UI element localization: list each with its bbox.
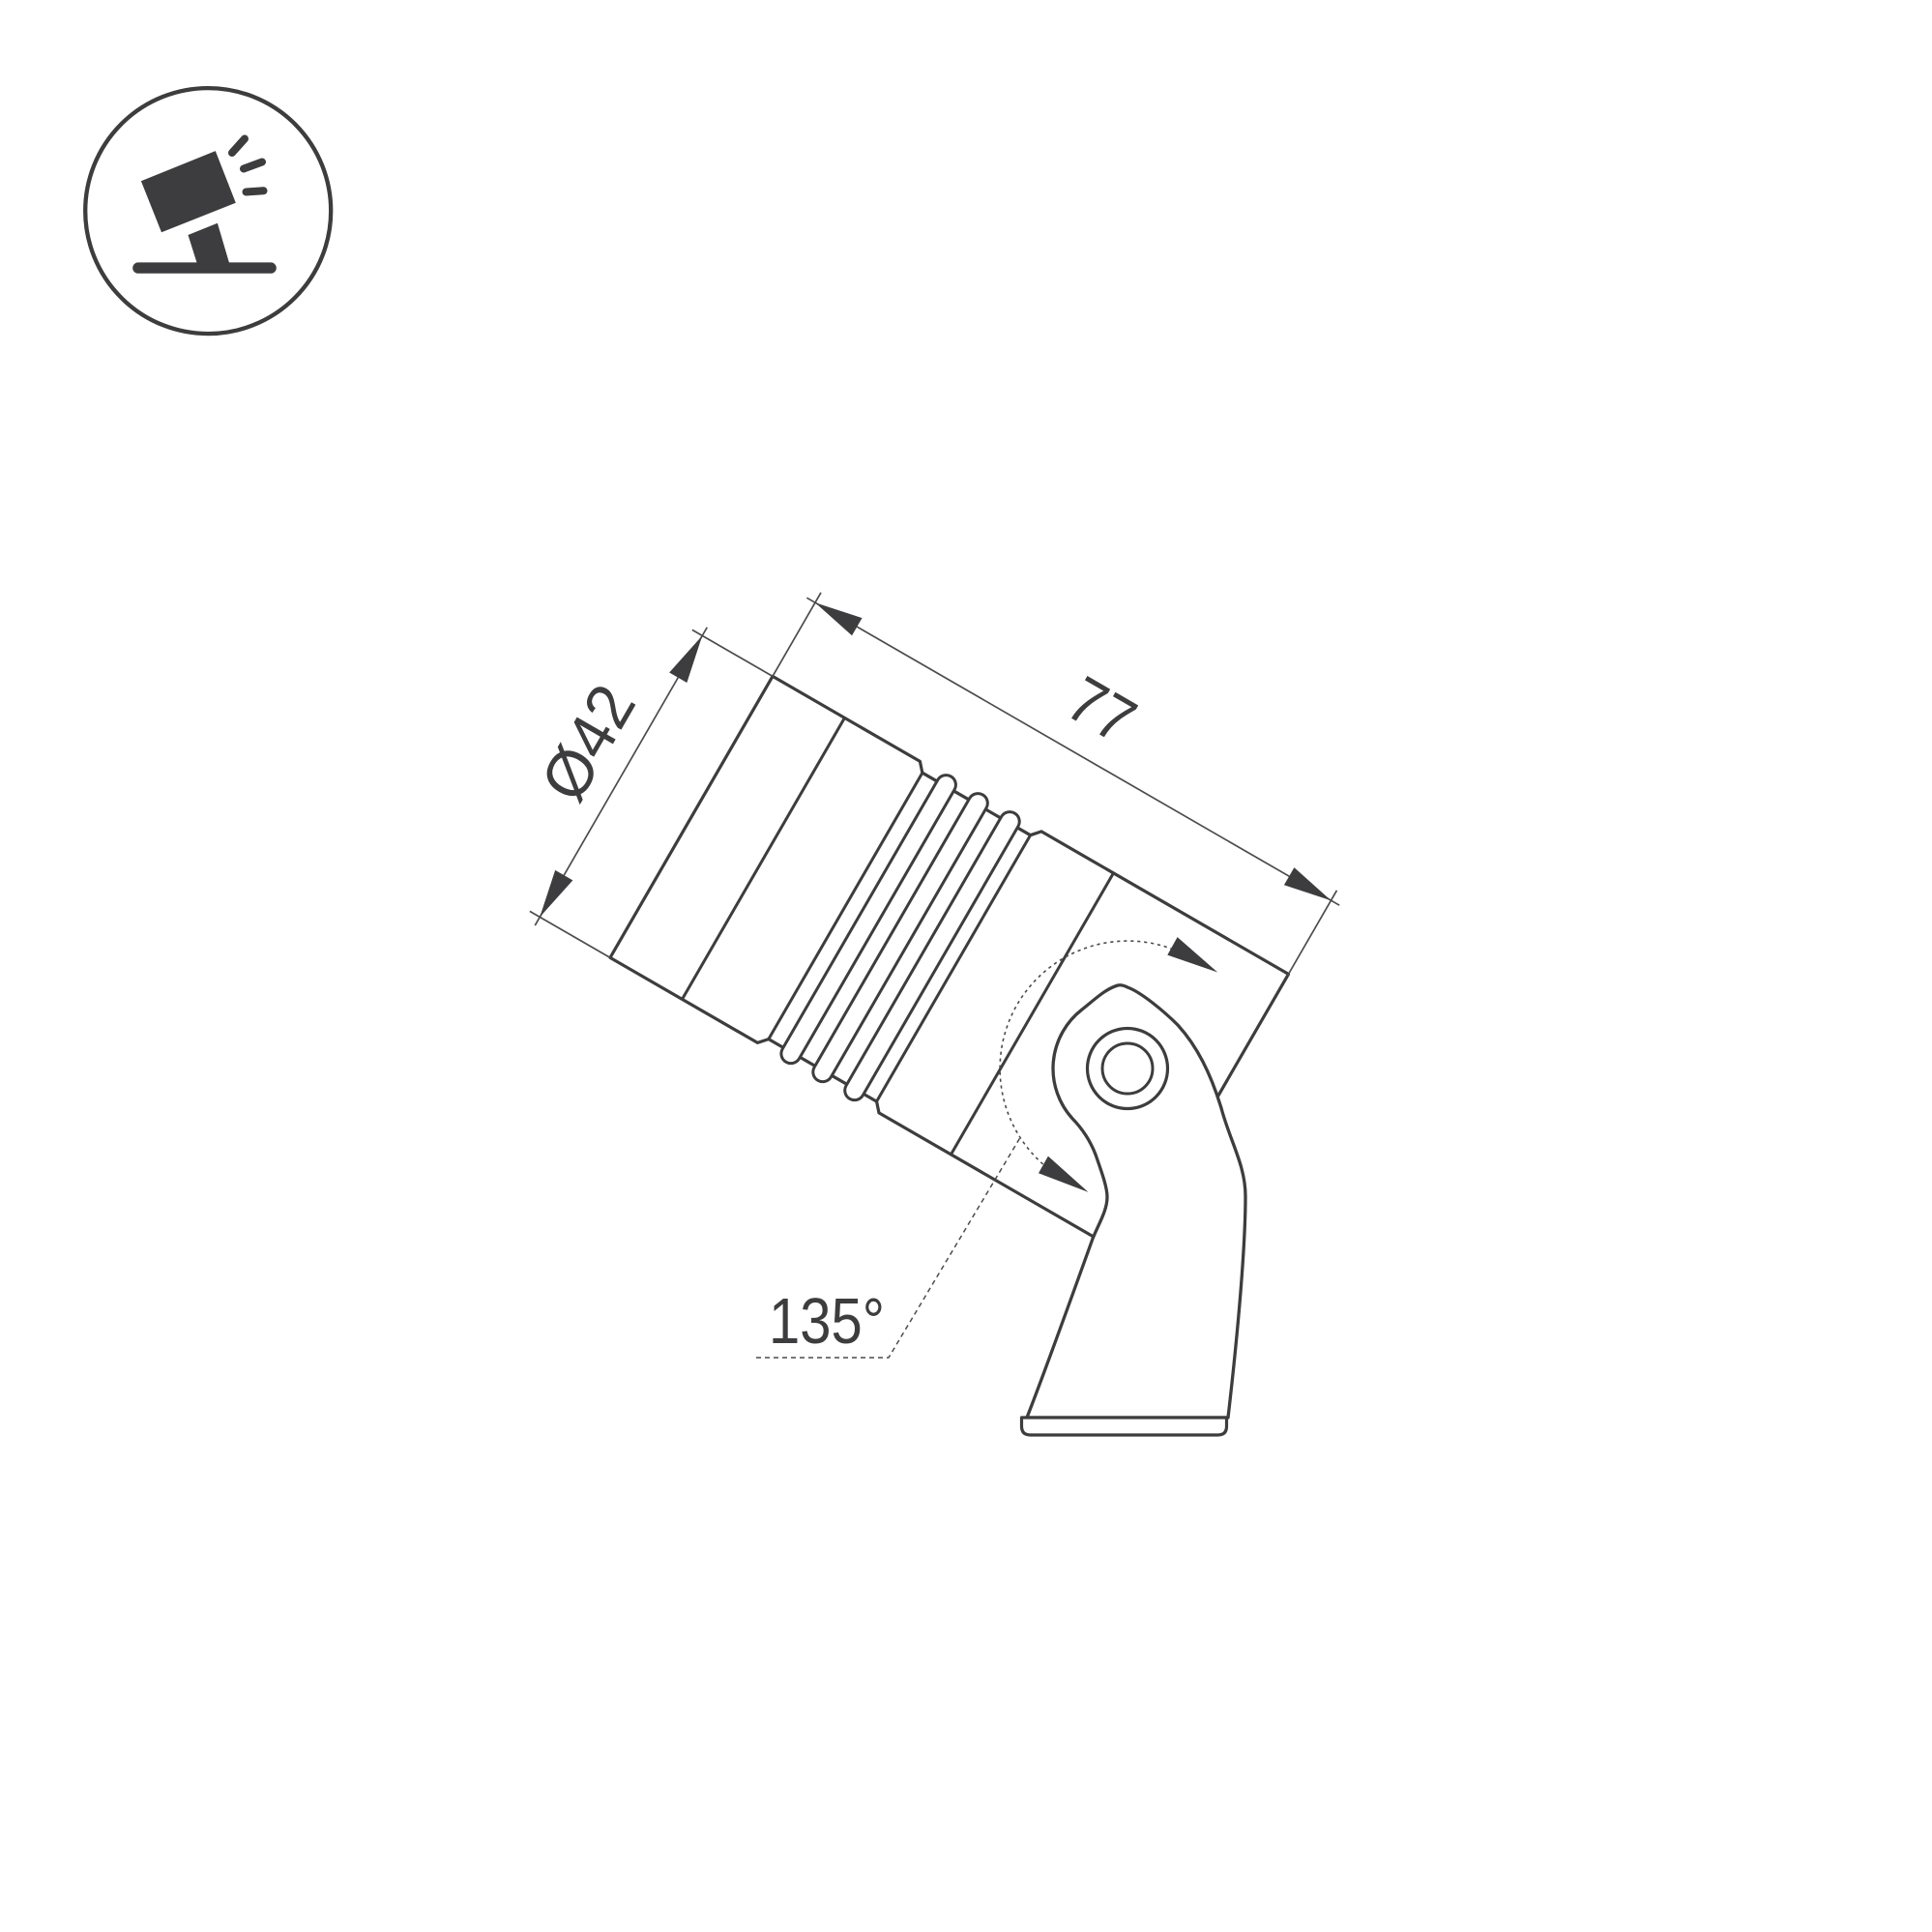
svg-text:135°: 135° xyxy=(769,1285,885,1358)
